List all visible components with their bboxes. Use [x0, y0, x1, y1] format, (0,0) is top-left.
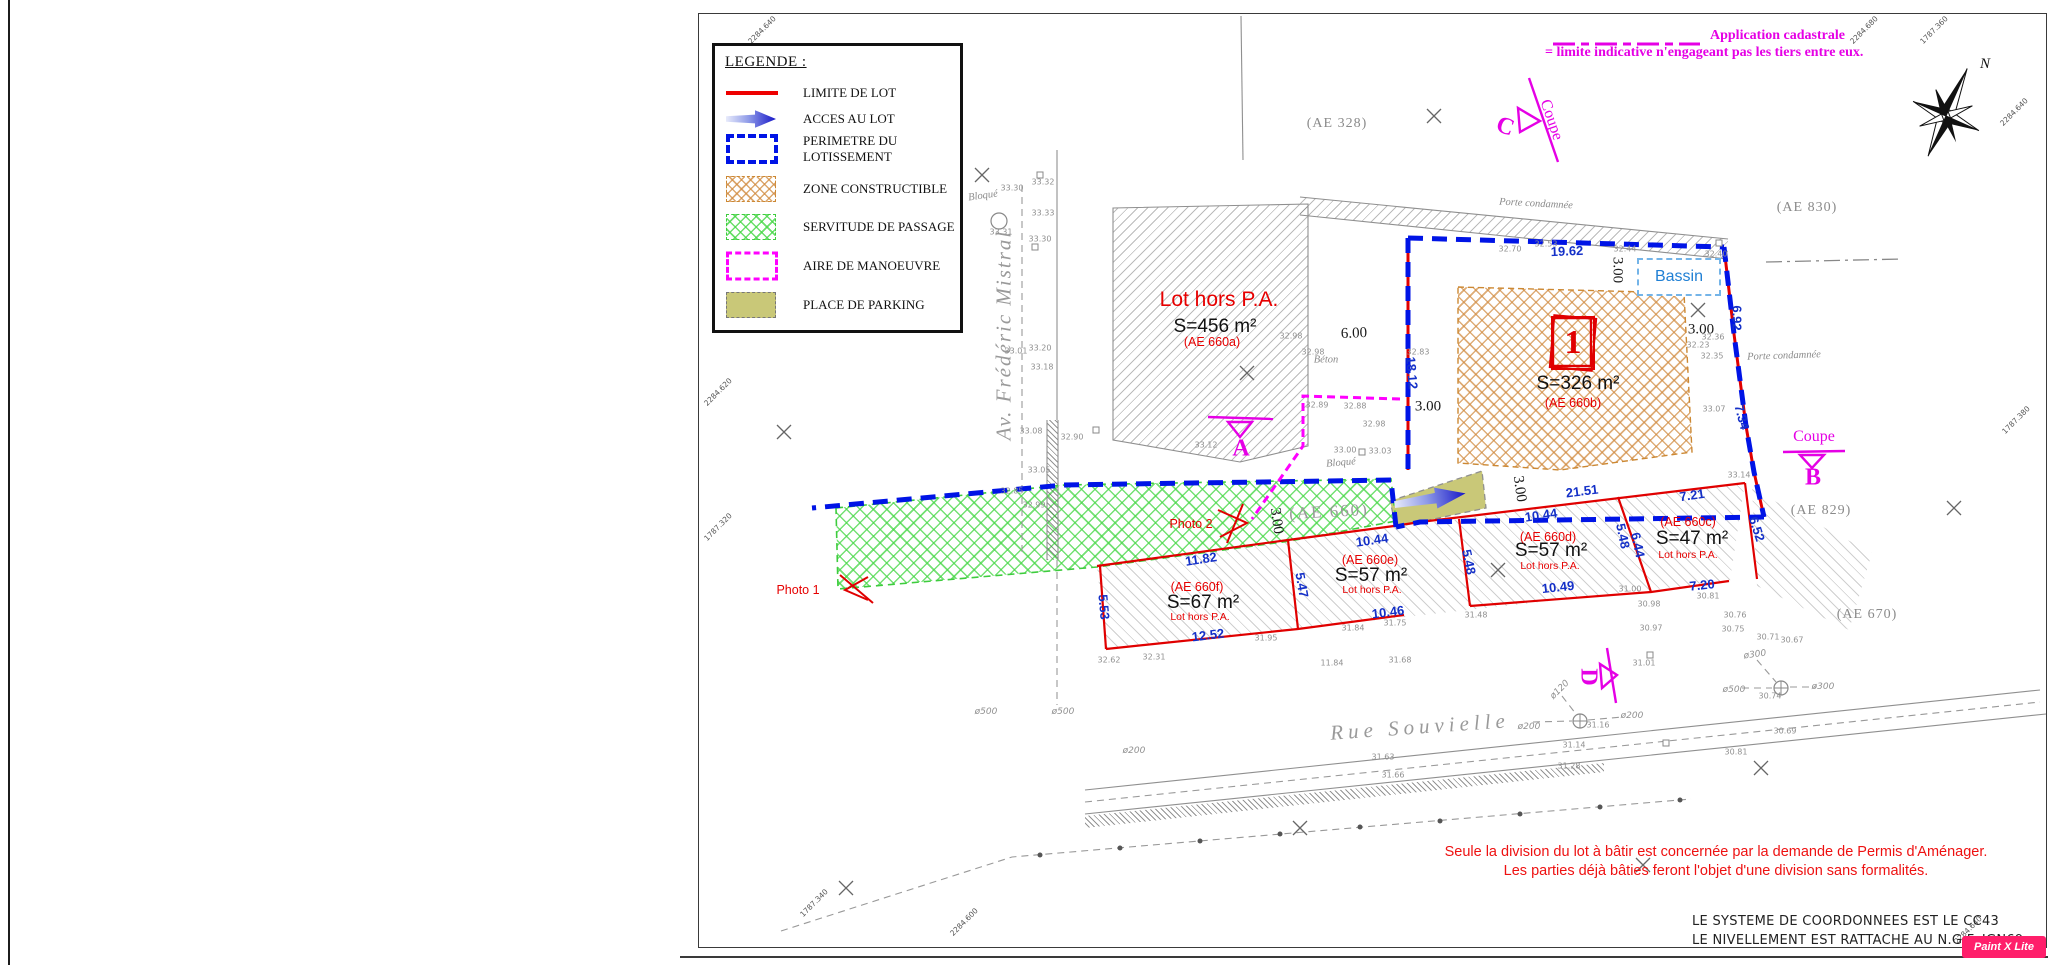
line-crossp [1691, 303, 1705, 317]
legend-label-acces: ACCES AU LOT [803, 111, 895, 127]
dimension-label: 18.12 [1403, 356, 1421, 390]
cadastral-note-line1: Application cadastrale [1710, 28, 1845, 44]
spot-elevation: 31.01 [1633, 659, 1656, 668]
disclaimer-note: Seule la division du lot à bâtir est con… [1430, 843, 2002, 881]
boundary-dot [1438, 819, 1443, 824]
spot-elevation: 31.14 [1563, 741, 1586, 750]
dimension-label: 3.00 [1266, 507, 1286, 535]
pipe-diameter-label: ø300 [1812, 682, 1835, 692]
dimension-label: 10.49 [1541, 578, 1575, 596]
spot-elevation: 31.95 [1255, 634, 1278, 643]
section-marker: D [1575, 668, 1602, 685]
map-region-hatchA [0, 0, 2048, 965]
line-redsym [845, 577, 868, 600]
line-grayd [1757, 660, 1776, 682]
dimension-label: 5.48 [1459, 548, 1479, 576]
line-sq [1359, 449, 1365, 455]
spot-elevation: 32.98 [1280, 332, 1303, 341]
spot-elevation: 32.62 [1098, 656, 1121, 665]
parcel-label: (AE 830) [1777, 200, 1838, 216]
dimension-label: 5.53 [1095, 594, 1112, 621]
spot-elevation: 33.01 [1005, 347, 1028, 356]
spot-elevation: 31.84 [1342, 624, 1365, 633]
spot-elevation: 32.83 [1407, 348, 1430, 357]
line-crossp [1947, 501, 1961, 515]
pipe-diameter-label: ø500 [1052, 707, 1075, 717]
pipe-diameter-label: ø500 [1723, 685, 1746, 695]
map-region-hatchC [0, 0, 2048, 965]
map-region-zoneh [0, 0, 2048, 965]
map-region-hatchB [0, 0, 2048, 965]
line-mh [1573, 714, 1587, 728]
bassin-box: Bassin [1637, 258, 1721, 296]
line-servo [836, 479, 1396, 589]
spot-elevation: 31.48 [1465, 611, 1488, 620]
pipe-diameter-label: ø200 [1518, 722, 1541, 732]
line-sq [1716, 240, 1722, 246]
line-crossp [777, 425, 791, 439]
dimension-label: 7.21 [1678, 486, 1705, 504]
line-mag [1252, 396, 1400, 519]
dimension-label: 6.92 [1730, 305, 1745, 330]
grid-coordinate: 1787.320 [702, 511, 734, 543]
disclaimer-line2: Les parties déjà bâties feront l'objet d… [1430, 862, 2002, 881]
parcel-label: (AE 829) [1791, 503, 1852, 519]
spot-elevation: 32.70 [1499, 245, 1522, 254]
feature-label: Porte condamnée [1499, 197, 1573, 212]
plan-canvas: 19.626.927.346.5218.1221.517.2110.4410.4… [0, 0, 2048, 965]
spot-elevation: 33.14 [1728, 471, 1751, 480]
line-sq [1647, 652, 1653, 658]
legend-swatch-servitude [726, 214, 776, 240]
spot-elevation: 11.84 [1321, 659, 1344, 668]
section-marker: A [1232, 436, 1249, 463]
legend-title: LEGENDE : [725, 54, 807, 71]
spot-elevation: 32.53 [1535, 240, 1558, 249]
legend-label-perimetre: PERIMETRE DU LOTISSEMENT [803, 133, 960, 165]
map-region-servh [0, 0, 2048, 965]
spot-elevation: 32.35 [1701, 352, 1724, 361]
boundary-dot [1278, 832, 1283, 837]
dimension-label: 10.44 [1355, 530, 1389, 549]
parcel-ref-label: (AE 660a) [1184, 335, 1240, 349]
spot-elevation: 33.33 [1032, 209, 1055, 218]
dimension-label: 7.34 [1731, 403, 1752, 431]
line-crossp [1240, 366, 1254, 380]
legend-swatch-parking [726, 292, 776, 318]
legend-label-limite: LIMITE DE LOT [803, 85, 896, 101]
parcel-ref-label: Photo 1 [776, 583, 819, 597]
boundary-dot [1198, 839, 1203, 844]
pipe-diameter-label: ø500 [975, 707, 998, 717]
cadastral-note-line2: = limite indicative n'engageant pas les … [1545, 45, 1863, 61]
section-marker: C [1492, 111, 1518, 142]
line-sq [1663, 740, 1669, 746]
lot-status-label: Lot hors P.A. [1342, 584, 1401, 596]
legend-box: LEGENDE : LIMITE DE LOT ACCES AU LOT PER… [712, 43, 963, 333]
spot-elevation: 32.90 [1061, 433, 1084, 442]
lot-1-number: 1 [1551, 316, 1595, 370]
spot-elevation: 32.89 [1306, 401, 1329, 410]
map-region-hatchA [0, 0, 2048, 965]
spot-elevation: 32.88 [1344, 402, 1367, 411]
line-magl [1208, 417, 1273, 419]
spot-elevation: 33.30 [1001, 184, 1024, 193]
legend-swatch-perimetre [726, 134, 778, 164]
lot-status-label: Lot hors P.A. [1658, 549, 1717, 561]
spot-elevation: 33.12 [1195, 441, 1218, 450]
compass-north-label: N [1979, 56, 1991, 72]
grid-coordinate: 1787.380 [2000, 404, 2032, 436]
line-gray [1241, 16, 1243, 160]
dimension-label: 12.52 [1191, 626, 1225, 645]
parcel-ref-label: (AE 660d) [1520, 530, 1576, 544]
line-redsym [1227, 504, 1243, 543]
spot-elevation: 31.28 [1558, 762, 1581, 771]
spot-elevation: 31.68 [1389, 656, 1412, 665]
line-crossp [1427, 109, 1441, 123]
spot-elevation: 31.16 [1587, 721, 1610, 730]
grid-coordinate: 2284.600 [948, 906, 980, 938]
spot-elevation: 33.08 [1020, 427, 1043, 436]
map-region-hatchC [0, 0, 2048, 965]
spot-elevation: 31.75 [1384, 619, 1407, 628]
boundary-dot [1678, 798, 1683, 803]
parcel-label: (AE 670) [1837, 607, 1898, 623]
legend-label-aire: AIRE DE MANOEUVRE [803, 258, 940, 274]
spot-elevation: 33.03 [1369, 447, 1392, 456]
line-graydd [1766, 259, 1902, 262]
line-sq [1093, 427, 1099, 433]
grid-coordinate: 2284.640 [746, 14, 778, 46]
street-name: Rue Souvielle [1329, 708, 1510, 745]
line-crossp [975, 168, 989, 182]
spot-elevation: 30.71 [1757, 633, 1780, 642]
pipe-diameter-label: ø300 [1743, 648, 1767, 661]
feature-label: Béton [1314, 355, 1339, 366]
spot-elevation: 30.67 [1781, 636, 1804, 645]
section-marker: Coupe [1536, 97, 1567, 142]
plan-linework [0, 0, 2048, 965]
line-grayd [1562, 696, 1576, 714]
parcel-ref-label: Photo 2 [1169, 517, 1212, 531]
legend-swatch-zone [726, 176, 776, 202]
spot-elevation: 30.76 [1724, 611, 1747, 620]
boundary-dot [1118, 846, 1123, 851]
pipe-diameter-label: ø200 [1123, 746, 1146, 756]
lot-status-label: Lot hors P.A. [1160, 288, 1279, 312]
legend-label-parking: PLACE DE PARKING [803, 297, 925, 313]
section-marker: B [1805, 465, 1821, 492]
legend-swatch-acces arrow-icon [726, 109, 776, 129]
lot-area-label: S=326 m² [1537, 373, 1620, 395]
grid-coordinate: 2284.620 [702, 376, 734, 408]
grid-coordinate: 1787.340 [798, 887, 830, 919]
parcel-label: (AE 328) [1307, 116, 1368, 132]
line-grayd [1085, 702, 2040, 802]
dimension-label: 3.00 [1509, 475, 1529, 503]
spot-elevation: 33.32 [1032, 178, 1055, 187]
line-crossp [1754, 761, 1768, 775]
line-magl [1783, 451, 1845, 452]
line-magl [1607, 648, 1616, 703]
pipe-diameter-label: ø200 [1621, 711, 1644, 721]
spot-elevation: 30.97 [1640, 624, 1663, 633]
line-magl [1600, 664, 1617, 688]
legend-label-servitude: SERVITUDE DE PASSAGE [803, 219, 955, 235]
map-region-hatchB [0, 0, 2048, 965]
survey-note-line1: LE SYSTEME DE COORDONNEES EST LE CC43 [1692, 912, 2024, 931]
spot-elevation: 32.99 [1023, 501, 1046, 510]
feature-label: Bloqué [968, 188, 999, 203]
parcel-label: (AE 660) [1289, 500, 1370, 524]
spot-elevation: 32.31 [1143, 653, 1166, 662]
spot-elevation: 30.81 [1697, 592, 1720, 601]
parcel-ref-label: (AE 660f) [1171, 580, 1224, 594]
spot-elevation: 33.31 [990, 228, 1013, 237]
map-region-parkf [0, 0, 2048, 965]
spot-elevation: 32.98 [1363, 420, 1386, 429]
spot-elevation: 33.30 [1029, 235, 1052, 244]
parcel-ref-label: (AE 660c) [1660, 515, 1716, 529]
line-crossp [1293, 821, 1307, 835]
spot-elevation: 32.44 [1614, 245, 1637, 254]
compass-rose-icon: N [1896, 50, 2008, 164]
spot-elevation: 33.00 [1334, 446, 1357, 455]
dimension-label: 21.51 [1565, 482, 1599, 501]
parcel-ref-label: (AE 660e) [1342, 553, 1398, 567]
parcel-ref-label: (AE 660b) [1545, 396, 1601, 410]
manhole-icon [1573, 714, 1587, 728]
lot-area-label: S=47 m² [1656, 528, 1728, 550]
lot-status-label: Lot hors P.A. [1170, 611, 1229, 623]
spot-elevation: 33.18 [1031, 363, 1054, 372]
line-crossp [1491, 563, 1505, 577]
lot-1-marker: 1 [1551, 316, 1595, 370]
spot-elevation: 33.05 [1028, 466, 1051, 475]
feature-label: Bloqué [1326, 456, 1357, 470]
paintx-watermark: Paint X Lite [1962, 936, 2046, 958]
boundary-dot [1358, 825, 1363, 830]
lot-status-label: Lot hors P.A. [1520, 560, 1579, 572]
spot-elevation: 30.98 [1638, 600, 1661, 609]
spot-elevation: 31.66 [1382, 771, 1405, 780]
spot-elevation: 33.07 [1703, 405, 1726, 414]
spot-elevation: 32.23 [1687, 341, 1710, 350]
dimension-label: 6.52 [1746, 515, 1768, 544]
line-sq [1032, 244, 1038, 250]
cadastral-plan-page: 19.626.927.346.5218.1221.517.2110.4410.4… [0, 0, 2048, 965]
spot-elevation: 31.00 [1619, 585, 1642, 594]
disclaimer-line1: Seule la division du lot à bâtir est con… [1430, 843, 2002, 862]
legend-swatch-aire [726, 252, 778, 281]
dimension-label: 3.00 [1609, 257, 1626, 283]
legend-swatch-limite [726, 91, 778, 95]
line-redsym [840, 575, 873, 603]
dimension-label: 6.00 [1341, 325, 1368, 343]
legend-label-zone: ZONE CONSTRUCTIBLE [803, 181, 947, 197]
boundary-dot [1038, 853, 1043, 858]
dimension-label: 10.44 [1524, 505, 1558, 524]
line-crossp [839, 881, 853, 895]
dimension-label: 11.82 [1184, 549, 1218, 569]
dimension-label: 3.00 [1415, 399, 1441, 416]
spot-elevation: 30.74 [1759, 692, 1782, 701]
dimension-label: 6.44 [1628, 531, 1648, 559]
boundary-dot [1518, 812, 1523, 817]
section-marker: Coupe [1793, 428, 1835, 446]
grid-coordinate: 1787.360 [1918, 14, 1950, 46]
grid-coordinate: 2284.680 [1848, 14, 1880, 46]
spot-elevation: 30.81 [1725, 748, 1748, 757]
spot-elevation: 32.85 [1001, 487, 1024, 496]
spot-elevation: 31.63 [1372, 753, 1395, 762]
spot-elevation: 33.20 [1029, 344, 1052, 353]
line-magl [1518, 108, 1540, 132]
line-redsym [1218, 510, 1247, 537]
pipe-diameter-label: ø120 [1548, 678, 1571, 701]
spot-elevation: 30.69 [1774, 727, 1797, 736]
boundary-dot [1598, 805, 1603, 810]
feature-label: Porte condamnée [1747, 349, 1821, 363]
spot-elevation: 30.75 [1722, 625, 1745, 634]
dimension-label: 5.47 [1292, 571, 1311, 599]
street-name: Av. Frédéric Mistral [992, 230, 1017, 441]
